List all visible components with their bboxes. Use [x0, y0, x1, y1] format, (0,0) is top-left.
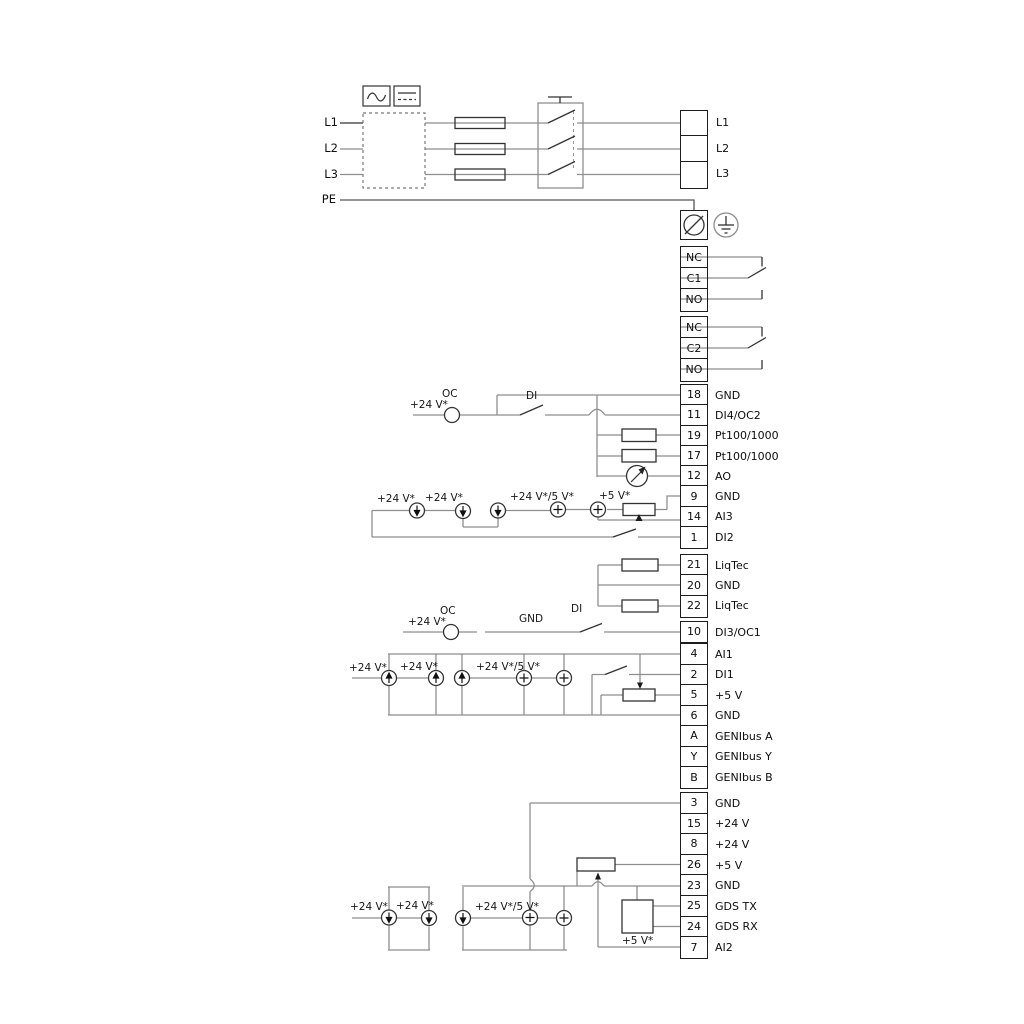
- terminal-cell: A: [681, 726, 707, 747]
- terminal-cell: 21: [681, 555, 707, 575]
- terminal-label: +24 V: [715, 834, 758, 855]
- relay1-nc-cell: NC: [681, 247, 707, 268]
- terminal-cell: 24: [681, 917, 707, 938]
- input-line-label-l2: L2: [308, 141, 338, 155]
- mains-terminal-block: [680, 110, 708, 189]
- terminal-label: +24 V: [715, 814, 758, 835]
- terminal-label: GND: [715, 875, 758, 896]
- terminal-label: GND: [715, 575, 749, 595]
- oc-label: OC: [442, 388, 458, 400]
- terminal-label: LiqTec: [715, 596, 749, 616]
- relay2-nc-cell: NC: [681, 317, 707, 338]
- terminal-cell: B: [681, 767, 707, 788]
- terminal-label: GDS TX: [715, 896, 758, 917]
- liqtec-terminal-block: 21 20 22: [680, 554, 708, 618]
- ai1-potentiometer-symbol: [623, 683, 655, 702]
- gds-module-box: [622, 900, 653, 933]
- terminal-label: GENIbus Y: [715, 747, 773, 768]
- supply-label: +24 V*/5 V*: [510, 491, 574, 503]
- supply-label: +24 V*: [400, 661, 438, 673]
- gnd-label: GND: [519, 613, 543, 625]
- supply-label: +5 V*: [622, 935, 653, 947]
- mains-terminal-labels: L1 L2 L3: [716, 110, 729, 186]
- di3-switch-contact: [580, 624, 602, 633]
- terminal-cell: 22: [681, 596, 707, 616]
- terminal-label: GND: [715, 385, 779, 405]
- supply-label: +24 V*: [425, 492, 463, 504]
- terminal-cell: 9: [681, 486, 707, 506]
- terminal-cell: 15: [681, 814, 707, 835]
- terminal-label: DI4/OC2: [715, 405, 779, 425]
- ai1-switch-contact: [605, 666, 627, 675]
- earth-ground-icon: [714, 213, 738, 237]
- di-label: DI: [571, 603, 582, 615]
- dc-symbol-icon: [394, 86, 420, 106]
- ao-meter-icon: [627, 466, 648, 487]
- terminal-cell: 5: [681, 685, 707, 706]
- pe-wiring: [340, 200, 694, 210]
- terminal-cell: 20: [681, 575, 707, 595]
- terminal-label: L3: [716, 161, 729, 186]
- terminal-label: GENIbus B: [715, 767, 773, 788]
- relay2-no-cell: NO: [681, 359, 707, 380]
- terminal-label: DI1: [715, 665, 773, 686]
- supply-label: +24 V*/5 V*: [476, 661, 540, 673]
- io-bottom-terminal-block: 3 15 8 26 23 25 24 7: [680, 792, 708, 959]
- di3-terminal-labels: DI3/OC1: [715, 621, 761, 643]
- supply-label: +24 V*: [377, 493, 415, 505]
- terminal-label: GND: [715, 793, 758, 814]
- relay2-terminal-block: NC C2 NO: [680, 316, 708, 382]
- terminal-label: L1: [716, 110, 729, 135]
- terminal-cell: 17: [681, 446, 707, 466]
- converter-box: [363, 113, 425, 188]
- terminal-label: GDS RX: [715, 917, 758, 938]
- terminal-cell: 12: [681, 466, 707, 486]
- terminal-label: Pt100/1000: [715, 446, 779, 466]
- terminal-cell: 25: [681, 896, 707, 917]
- io-top-terminal-block: 18 11 19 17 12 9 14 1: [680, 384, 708, 549]
- terminal-cell: 1: [681, 527, 707, 547]
- terminal-label: GND: [715, 486, 779, 506]
- wiring-diagram: L1 L2 L3 PE L1 L2 L3 NC C1 NO NC C2 NO 1…: [0, 0, 1024, 1024]
- terminal-cell: 26: [681, 855, 707, 876]
- io-top-terminal-labels: GND DI4/OC2 Pt100/1000 Pt100/1000 AO GND…: [715, 385, 779, 547]
- terminal-cell: 10: [681, 622, 707, 641]
- mains-terminal-cell: [681, 111, 707, 136]
- terminal-label: LiqTec: [715, 555, 749, 575]
- supply-label: +5 V*: [599, 490, 630, 502]
- io-top-switch-contacts: [520, 405, 636, 537]
- terminal-label: GENIbus A: [715, 726, 773, 747]
- supply-label: +24 V*: [410, 399, 448, 411]
- terminal-cell: 18: [681, 385, 707, 405]
- terminal-cell: 3: [681, 793, 707, 814]
- terminal-label: DI3/OC1: [715, 621, 761, 643]
- terminal-label: +5 V: [715, 685, 773, 706]
- pt100-resistor-symbols: [622, 429, 656, 462]
- terminal-label: +5 V: [715, 855, 758, 876]
- input-line-label-pe: PE: [306, 192, 336, 206]
- io-mid-terminal-block: 4 2 5 6 A Y B: [680, 643, 708, 789]
- terminal-label: AI3: [715, 507, 779, 527]
- terminal-label: DI2: [715, 527, 779, 547]
- pe-terminal-box: [680, 210, 708, 240]
- diagram-linework: [0, 0, 1024, 1024]
- terminal-cell: Y: [681, 747, 707, 768]
- supply-label: +24 V*: [349, 662, 387, 674]
- terminal-label: AI2: [715, 937, 758, 958]
- supply-label: +24 V*/5 V*: [475, 901, 539, 913]
- liqtec-terminal-labels: LiqTec GND LiqTec: [715, 555, 749, 616]
- terminal-cell: 19: [681, 426, 707, 446]
- input-line-label-l3: L3: [308, 167, 338, 181]
- mains-terminal-cell: [681, 162, 707, 187]
- ai3-potentiometer-symbol: [623, 504, 655, 522]
- relay2-c2-cell: C2: [681, 338, 707, 359]
- terminal-cell: 14: [681, 507, 707, 527]
- oc-label: OC: [440, 605, 456, 617]
- terminal-cell: 2: [681, 665, 707, 686]
- terminal-label: GND: [715, 706, 773, 727]
- terminal-cell: 11: [681, 405, 707, 425]
- relay1-no-cell: NO: [681, 289, 707, 310]
- supply-label: +24 V*: [350, 901, 388, 913]
- ai2-potentiometer-symbol: [577, 858, 615, 880]
- input-line-label-l1: L1: [308, 115, 338, 129]
- di3-terminal-block: 10: [680, 621, 708, 643]
- terminal-label: AO: [715, 466, 779, 486]
- mains-wiring: [340, 123, 680, 175]
- di-label: DI: [526, 390, 537, 402]
- terminal-cell: 7: [681, 937, 707, 958]
- supply-label: +24 V*: [396, 900, 434, 912]
- terminal-label: L2: [716, 135, 729, 160]
- relay1-terminal-block: NC C1 NO: [680, 246, 708, 312]
- relay1-c1-cell: C1: [681, 268, 707, 289]
- io-mid-terminal-labels: AI1 DI1 +5 V GND GENIbus A GENIbus Y GEN…: [715, 644, 773, 788]
- ac-symbol-icon: [363, 86, 390, 106]
- terminal-cell: 6: [681, 706, 707, 727]
- terminal-label: AI1: [715, 644, 773, 665]
- io-bottom-terminal-labels: GND +24 V +24 V +5 V GND GDS TX GDS RX A…: [715, 793, 758, 958]
- mains-terminal-cell: [681, 136, 707, 161]
- terminal-cell: 23: [681, 875, 707, 896]
- terminal-label: Pt100/1000: [715, 426, 779, 446]
- terminal-cell: 4: [681, 644, 707, 665]
- terminal-cell: 8: [681, 834, 707, 855]
- supply-label: +24 V*: [408, 616, 446, 628]
